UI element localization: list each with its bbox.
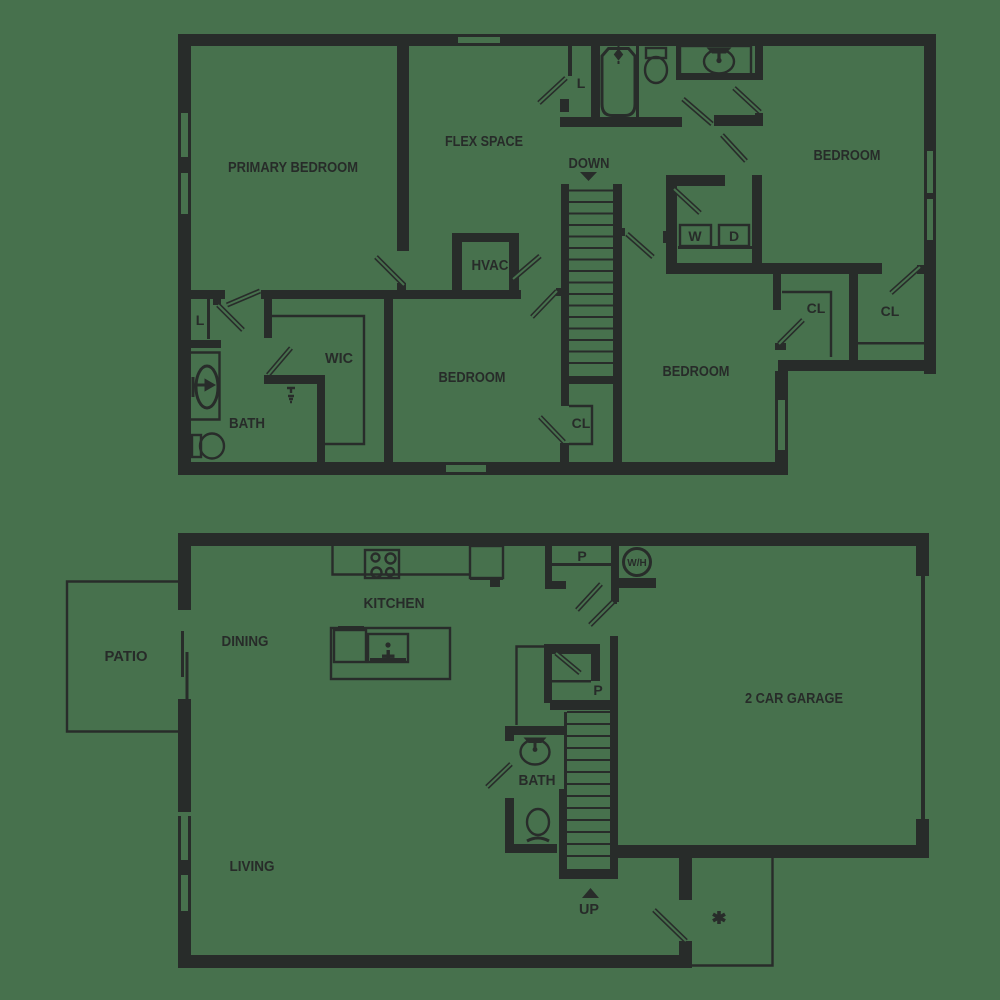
svg-text:2 CAR GARAGE: 2 CAR GARAGE	[745, 691, 843, 707]
svg-text:L: L	[577, 75, 586, 91]
svg-text:W/H: W/H	[627, 558, 646, 569]
svg-text:LIVING: LIVING	[230, 859, 275, 875]
svg-text:BEDROOM: BEDROOM	[439, 370, 506, 386]
svg-text:CL: CL	[807, 300, 826, 316]
svg-text:UP: UP	[579, 902, 599, 918]
svg-text:P: P	[577, 548, 586, 564]
svg-text:HVAC: HVAC	[472, 258, 509, 274]
svg-text:FLEX SPACE: FLEX SPACE	[445, 134, 523, 150]
svg-text:PRIMARY BEDROOM: PRIMARY BEDROOM	[228, 160, 358, 176]
svg-text:CL: CL	[881, 303, 900, 319]
svg-text:DINING: DINING	[222, 634, 269, 650]
svg-text:BEDROOM: BEDROOM	[663, 364, 730, 380]
svg-text:BATH: BATH	[519, 773, 556, 789]
svg-text:DOWN: DOWN	[569, 156, 610, 172]
svg-text:KITCHEN: KITCHEN	[364, 596, 425, 612]
svg-text:D: D	[729, 228, 739, 244]
svg-text:CL: CL	[572, 415, 591, 431]
svg-text:PATIO: PATIO	[105, 649, 148, 665]
svg-text:P: P	[593, 682, 602, 698]
svg-text:BATH: BATH	[229, 416, 265, 432]
svg-text:L: L	[196, 312, 205, 328]
svg-text:W: W	[688, 228, 702, 244]
svg-text:WIC: WIC	[325, 351, 354, 367]
svg-text:BEDROOM: BEDROOM	[814, 148, 881, 164]
